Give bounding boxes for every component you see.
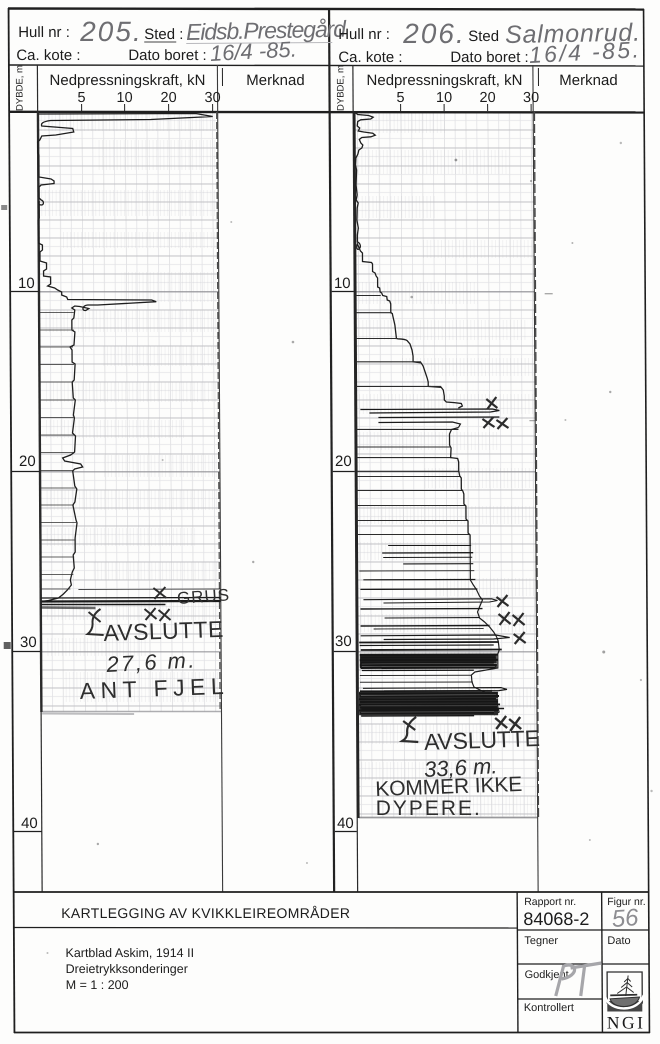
svg-text:KARTLEGGING AV KVIKKLEIREOMRÅD: KARTLEGGING AV KVIKKLEIREOMRÅDER [61, 905, 350, 921]
svg-text:DYBDE, m: DYBDE, m [14, 65, 25, 111]
svg-text:Ca. kote :: Ca. kote : [338, 49, 402, 66]
svg-text:84068-2: 84068-2 [523, 909, 589, 929]
svg-text:10: 10 [436, 90, 452, 106]
svg-text:30: 30 [20, 634, 37, 651]
svg-text:16/4 -85.: 16/4 -85. [209, 36, 297, 66]
svg-text:Kartblad Askim, 1914 II: Kartblad Askim, 1914 II [65, 946, 194, 960]
svg-text:Merknad: Merknad [246, 72, 304, 89]
svg-text:Ca. kote :: Ca. kote : [16, 47, 80, 64]
svg-text:Sted :: Sted : [144, 26, 183, 43]
svg-text:10: 10 [116, 90, 132, 106]
svg-text:Nedpressningskraft, kN: Nedpressningskraft, kN [366, 72, 522, 89]
svg-text:20: 20 [479, 90, 495, 106]
svg-text:20: 20 [19, 453, 36, 470]
svg-text:205.: 205. [79, 16, 143, 47]
svg-text:Hull nr :: Hull nr : [18, 24, 70, 41]
svg-text:20: 20 [335, 453, 352, 470]
svg-text:Dato boret :: Dato boret : [128, 47, 206, 64]
svg-text:5: 5 [77, 90, 85, 106]
svg-text:Dato: Dato [607, 935, 630, 947]
svg-text:40: 40 [337, 815, 354, 832]
svg-text:Dreietrykksonderinger: Dreietrykksonderinger [66, 962, 188, 976]
svg-text:DYBDE, m: DYBDE, m [335, 65, 346, 111]
svg-text:30: 30 [204, 90, 220, 106]
svg-text:206.: 206. [402, 18, 466, 49]
svg-text:Hull nr :: Hull nr : [338, 26, 390, 43]
svg-text:Merknad: Merknad [559, 72, 617, 89]
svg-text:20: 20 [160, 90, 176, 106]
svg-text:16/4 -85.: 16/4 -85. [528, 36, 639, 68]
svg-text:AVSLUTTE: AVSLUTTE [423, 725, 540, 755]
svg-text:40: 40 [21, 815, 38, 832]
svg-text:NGI: NGI [607, 1013, 643, 1033]
svg-text:Dato boret :: Dato boret : [450, 49, 528, 66]
svg-text:5: 5 [396, 90, 404, 106]
svg-text:DYPERE.: DYPERE. [376, 797, 482, 820]
svg-text:56: 56 [611, 904, 640, 933]
svg-text:M = 1 : 200: M = 1 : 200 [66, 978, 129, 992]
svg-text:Rapport nr.: Rapport nr. [524, 896, 576, 908]
svg-text:10: 10 [18, 275, 35, 292]
svg-text:AVSLUTTE: AVSLUTTE [103, 616, 224, 646]
svg-text:Kontrollert: Kontrollert [524, 1002, 574, 1014]
svg-text:10: 10 [334, 275, 351, 292]
svg-text:Nedpressningskraft, kN: Nedpressningskraft, kN [49, 72, 205, 89]
svg-text:30: 30 [523, 90, 539, 106]
svg-text:30: 30 [335, 633, 352, 650]
svg-text:GRUS: GRUS [176, 585, 230, 608]
svg-text:Sted: Sted [468, 28, 499, 45]
svg-text:Tegner: Tegner [524, 935, 558, 947]
